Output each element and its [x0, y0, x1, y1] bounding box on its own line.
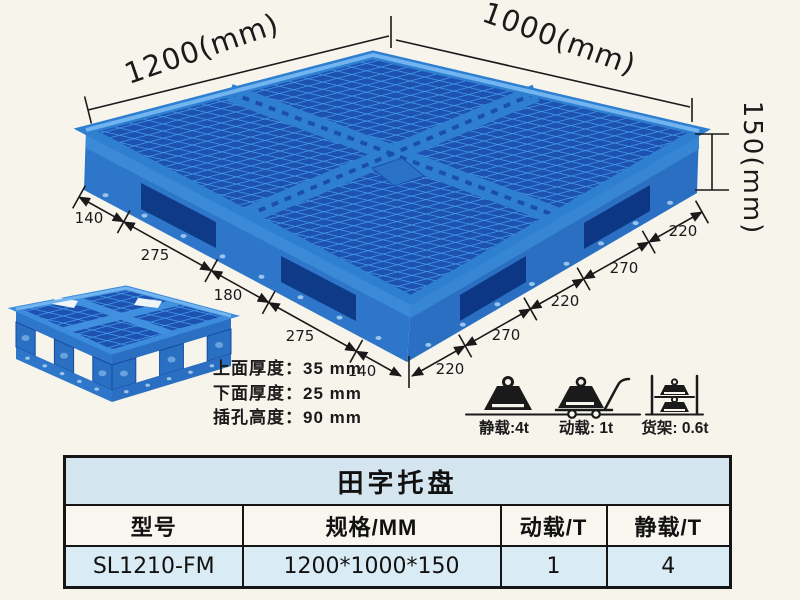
spec-table: 田字托盘 型号 规格/MM 动载/T 静载/T SL1210-FM 1200*1… — [63, 455, 732, 589]
col-header-model: 型号 — [65, 505, 243, 546]
col-header-static-load: 静载/T — [607, 505, 731, 546]
dim-left-2: 275 — [141, 246, 170, 264]
load-rating-icons: 静载:4t 动载: 1t 货架: 0.6t — [466, 376, 709, 437]
dim-height-150: 150(mm) — [695, 101, 767, 236]
dynamic-load-icon — [556, 378, 629, 418]
dim-right-1: 220 — [436, 360, 465, 378]
dim-width-label: 1200(mm) — [120, 6, 283, 91]
dynamic-load-label: 动载: 1t — [559, 419, 613, 437]
table-row: SL1210-FM 1200*1000*150 1 4 — [65, 546, 731, 588]
spec-bottom-thickness: 下面厚度：25 mm — [213, 383, 362, 403]
spec-top-thickness: 上面厚度：35 mm — [213, 358, 362, 378]
rack-load-icon — [652, 376, 697, 414]
thickness-specs: 上面厚度：35 mm 下面厚度：25 mm 插孔高度：90 mm — [213, 358, 362, 427]
col-header-spec: 规格/MM — [243, 505, 501, 546]
dim-left-3: 180 — [214, 286, 243, 304]
cell-spec: 1200*1000*150 — [243, 546, 501, 588]
col-header-dynamic-load: 动载/T — [501, 505, 607, 546]
spec-fork-height: 插孔高度：90 mm — [213, 407, 362, 427]
dim-left-1: 140 — [75, 209, 104, 227]
dim-right-2: 270 — [492, 326, 521, 344]
rack-load-label: 货架: 0.6t — [641, 418, 708, 437]
static-load-label: 静载:4t — [479, 418, 529, 437]
dim-left-4: 275 — [286, 327, 315, 345]
dim-height-label: 150(mm) — [737, 101, 767, 236]
dim-right-3: 220 — [551, 292, 580, 310]
dim-depth-label: 1000(mm) — [478, 0, 641, 82]
dim-right-5: 220 — [669, 222, 698, 240]
cell-dynamic-load: 1 — [501, 546, 607, 588]
cell-static-load: 4 — [607, 546, 731, 588]
cell-model: SL1210-FM — [65, 546, 243, 588]
dim-right-4: 270 — [610, 259, 639, 277]
inset-pallet-photo — [16, 288, 231, 402]
static-load-icon — [484, 378, 532, 411]
table-title: 田字托盘 — [65, 457, 731, 506]
